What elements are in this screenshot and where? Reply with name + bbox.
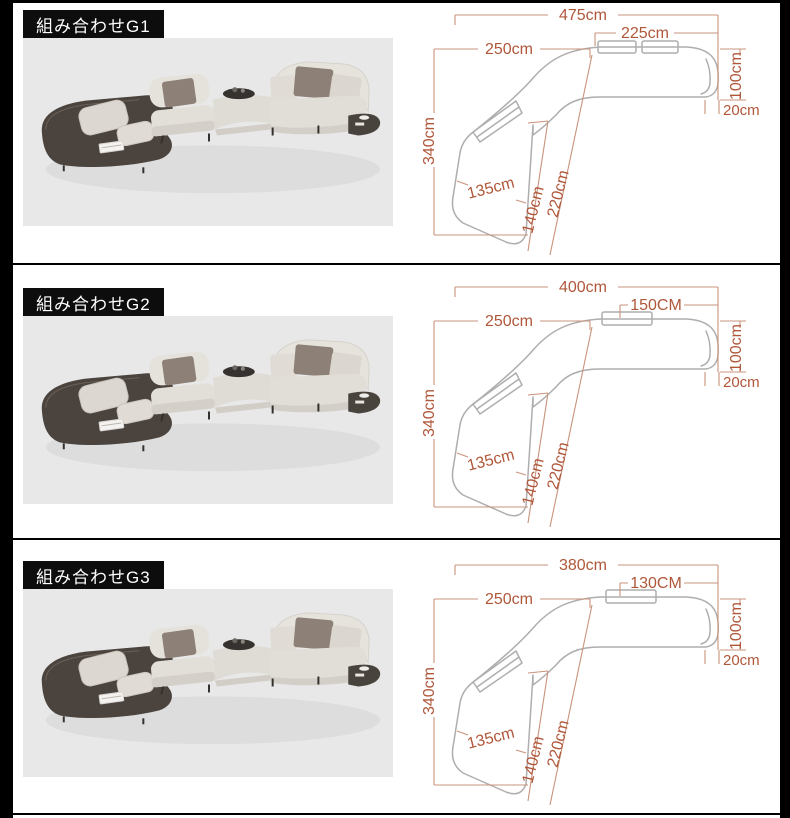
dimension-diagram: 400cm 250cm 150CM 100cm 20cm 340cm 135cm… — [420, 275, 765, 527]
dimension-drawing: 475cm 250cm 225cm 100cm 20cm 340cm 135cm… — [420, 3, 765, 255]
sofa-photo-illustration — [23, 316, 393, 504]
dim-right-section-width: 130CM — [630, 575, 682, 592]
center-seat — [213, 646, 273, 687]
chaise-backrest — [473, 651, 522, 692]
dim-corner-gap: 20cm — [723, 102, 760, 119]
combination-label-text: 組み合わせG1 — [36, 12, 151, 37]
frame-border-right — [780, 0, 790, 818]
dim-chaise-depth: 140cm — [520, 457, 548, 508]
dim-corner-gap: 20cm — [723, 374, 760, 391]
dimension-diagram: 380cm 250cm 130CM 100cm 20cm 340cm 135cm… — [420, 553, 765, 805]
cushion-dark — [293, 344, 333, 377]
dim-total-width: 400cm — [559, 279, 607, 296]
combination-label: 組み合わせG1 — [23, 10, 164, 38]
dim-front-width: 250cm — [485, 591, 533, 608]
cushion-dark — [162, 629, 197, 659]
cushion-light-left — [270, 75, 297, 101]
dim-total-width: 380cm — [559, 557, 607, 574]
sofa-outline — [452, 590, 718, 794]
section-g3: 組み合わせG3 — [13, 540, 780, 813]
section-g2: 組み合わせG2 — [13, 265, 780, 538]
combination-label: 組み合わせG3 — [23, 561, 164, 589]
dim-total-depth: 340cm — [421, 117, 438, 165]
dim-chaise-width: 135cm — [466, 175, 517, 203]
sofa-outline — [452, 312, 718, 516]
dimension-diagram: 475cm 250cm 225cm 100cm 20cm 340cm 135cm… — [420, 3, 765, 255]
section-divider — [0, 263, 790, 265]
dimension-drawing: 400cm 250cm 150CM 100cm 20cm 340cm 135cm… — [420, 275, 765, 527]
dim-front-width: 250cm — [485, 313, 533, 330]
frame-border-top — [13, 0, 780, 3]
combination-label-text: 組み合わせG2 — [36, 290, 151, 315]
cushion-light-left — [270, 626, 297, 652]
center-seat — [213, 373, 273, 414]
dim-chaise-length: 220cm — [545, 719, 573, 770]
dim-chaise-width: 135cm — [466, 447, 517, 475]
section-g1: 組み合わせG1 — [13, 3, 780, 263]
dim-right-depth: 100cm — [728, 52, 745, 100]
dim-chaise-width: 135cm — [466, 725, 517, 753]
dim-right-depth: 100cm — [728, 602, 745, 650]
dim-total-width: 475cm — [559, 7, 607, 24]
dimension-drawing: 380cm 250cm 130CM 100cm 20cm 340cm 135cm… — [420, 553, 765, 805]
dim-front-width: 250cm — [485, 41, 533, 58]
center-seat — [213, 95, 273, 136]
frame-border-left — [0, 0, 13, 818]
dim-total-depth: 340cm — [421, 389, 438, 437]
chaise-backrest — [473, 373, 522, 414]
sofa-photo-illustration — [23, 589, 393, 777]
sofa-photo — [23, 589, 393, 777]
sofa-photo-illustration — [23, 38, 393, 226]
sofa-photo — [23, 38, 393, 226]
cushion-dark — [293, 66, 333, 99]
dim-total-depth: 340cm — [421, 667, 438, 715]
dim-right-section-width: 150CM — [630, 297, 682, 314]
combination-label-text: 組み合わせG3 — [36, 563, 151, 588]
dim-right-depth: 100cm — [728, 324, 745, 372]
combination-label: 組み合わせG2 — [23, 288, 164, 316]
section-divider — [0, 538, 790, 540]
dim-chaise-depth: 140cm — [520, 735, 548, 786]
chaise-backrest — [473, 101, 522, 142]
cushion-dark — [162, 78, 197, 108]
dim-corner-gap: 20cm — [723, 652, 760, 669]
sofa-outline — [452, 41, 718, 244]
dim-right-section-width: 225cm — [621, 25, 669, 42]
dim-chaise-length: 220cm — [545, 441, 573, 492]
cushion-light-left — [270, 353, 297, 379]
cushion-dark — [162, 356, 197, 386]
sofa-photo — [23, 316, 393, 504]
dim-chaise-depth: 140cm — [520, 185, 548, 236]
dim-chaise-length: 220cm — [545, 169, 573, 220]
cushion-dark — [293, 617, 333, 650]
frame-border-bottom — [0, 813, 790, 815]
